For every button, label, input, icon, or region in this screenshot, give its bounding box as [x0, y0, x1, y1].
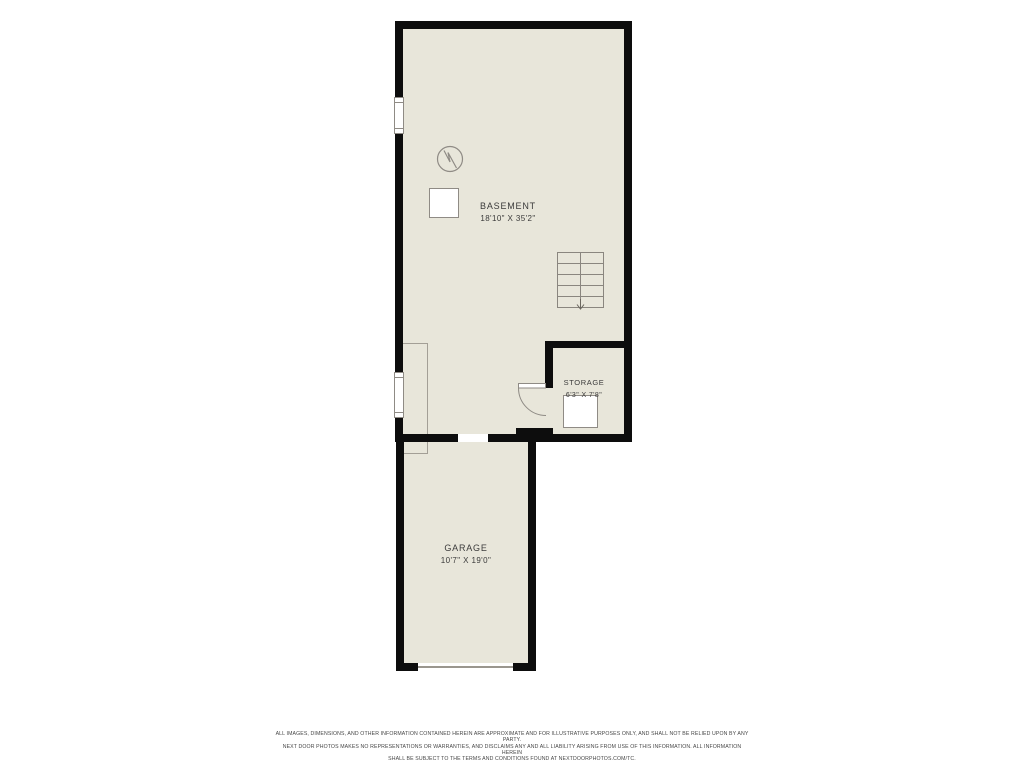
window-icon [394, 97, 404, 134]
basement-label: BASEMENT 18'10" X 35'2" [433, 201, 583, 223]
basement-garage-doorway [458, 434, 488, 442]
floor-plan-page: BASEMENT 18'10" X 35'2" STORAGE 6'3" X 7… [0, 0, 1024, 768]
basement-floor [399, 25, 628, 438]
disclaimer-line-3: SHALL BE SUBJECT TO THE TERMS AND CONDIT… [272, 756, 752, 762]
garage-room-dimensions: 10'7" X 19'0" [391, 556, 541, 565]
wall-storage-top [545, 341, 632, 348]
garage-label: GARAGE 10'7" X 19'0" [391, 543, 541, 565]
disclaimer-text: ALL IMAGES, DIMENSIONS, AND OTHER INFORM… [272, 731, 752, 762]
garage-room-name: GARAGE [391, 543, 541, 553]
stairs-icon [557, 250, 605, 312]
storage-room-name: STORAGE [549, 379, 619, 387]
window-pane-line [395, 412, 403, 413]
window-pane-line [395, 128, 403, 129]
basement-room-name: BASEMENT [433, 201, 583, 211]
storage-label: STORAGE 6'3" X 7'8" [549, 379, 619, 400]
basement-room-dimensions: 18'10" X 35'2" [433, 214, 583, 223]
window-pane-line [395, 377, 403, 378]
wall-basement-right [624, 21, 632, 442]
garage-door [418, 663, 513, 671]
wall-basement-bottom [395, 434, 632, 442]
window-icon [394, 372, 404, 418]
water-heater-icon [435, 144, 465, 174]
garage-door-panel-line [418, 666, 513, 668]
storage-room-dimensions: 6'3" X 7'8" [549, 391, 619, 400]
disclaimer-line-1: ALL IMAGES, DIMENSIONS, AND OTHER INFORM… [272, 731, 752, 744]
disclaimer-line-2: NEXT DOOR PHOTOS MAKES NO REPRESENTATION… [272, 744, 752, 757]
wall-basement-top [395, 21, 632, 29]
window-pane-line [395, 102, 403, 103]
